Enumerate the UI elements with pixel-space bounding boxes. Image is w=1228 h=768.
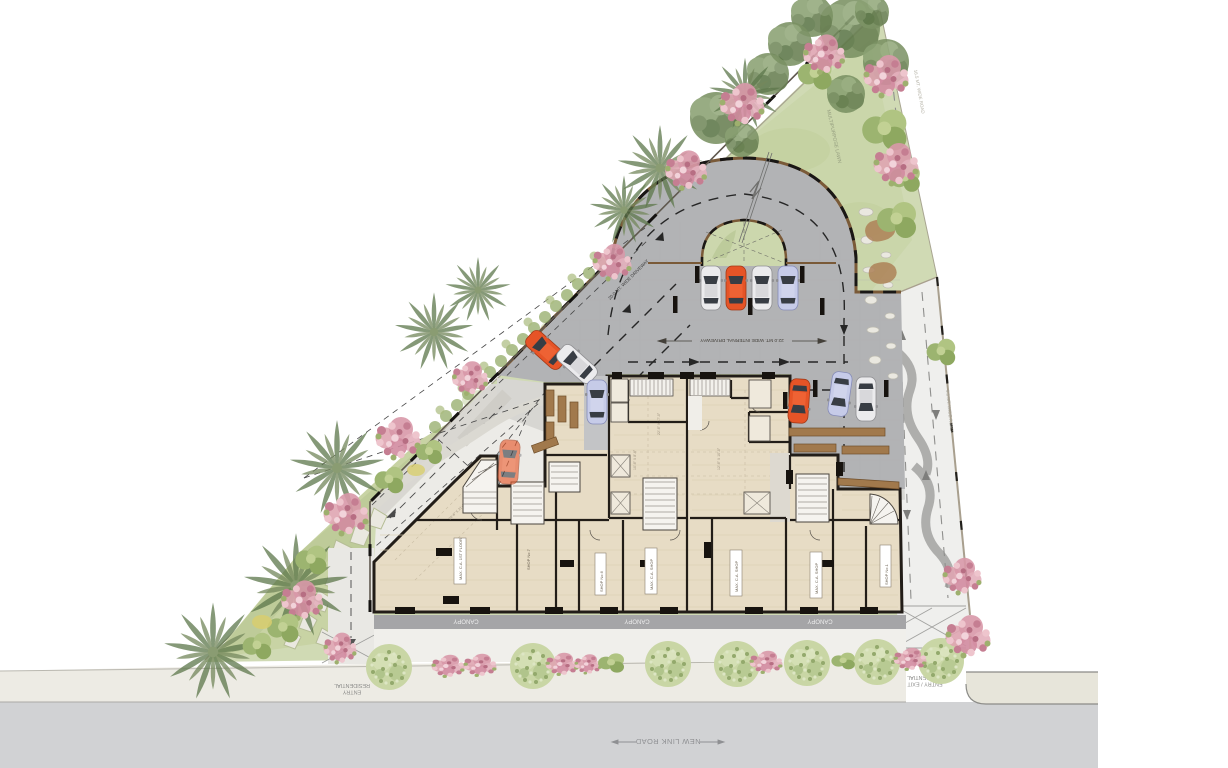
svg-text:NEW LINK ROAD: NEW LINK ROAD (635, 737, 700, 746)
svg-text:MAX. C.A. 1ST FLOOR: MAX. C.A. 1ST FLOOR (458, 538, 463, 580)
svg-text:SHOP No.1: SHOP No.1 (884, 563, 889, 585)
svg-text:RESIDENTIAL: RESIDENTIAL (334, 682, 370, 688)
svg-text:MAX. C.A. SHOP: MAX. C.A. SHOP (814, 563, 819, 594)
svg-text:SHOP No.7: SHOP No.7 (526, 548, 531, 570)
svg-text:10'-6" X 8'-0": 10'-6" X 8'-0" (633, 449, 637, 470)
svg-text:ENTRY: ENTRY (342, 689, 361, 695)
svg-text:12'-6" X 10'-0": 12'-6" X 10'-0" (717, 447, 721, 470)
svg-text:MAX. C.A. SHOP: MAX. C.A. SHOP (649, 559, 654, 590)
svg-text:CANOPY: CANOPY (807, 618, 832, 624)
svg-text:SHOP No.6: SHOP No.6 (599, 570, 604, 592)
svg-text:CANOPY: CANOPY (453, 618, 478, 624)
svg-text:CANOPY: CANOPY (624, 618, 649, 624)
svg-text:22'-6" X 17'-0": 22'-6" X 17'-0" (657, 412, 661, 435)
svg-text:MAX. C.A. SHOP: MAX. C.A. SHOP (734, 561, 739, 592)
svg-text:22.0 MT. WIDE INTERNAL DRIVEWA: 22.0 MT. WIDE INTERNAL DRIVEWAY (699, 337, 783, 343)
